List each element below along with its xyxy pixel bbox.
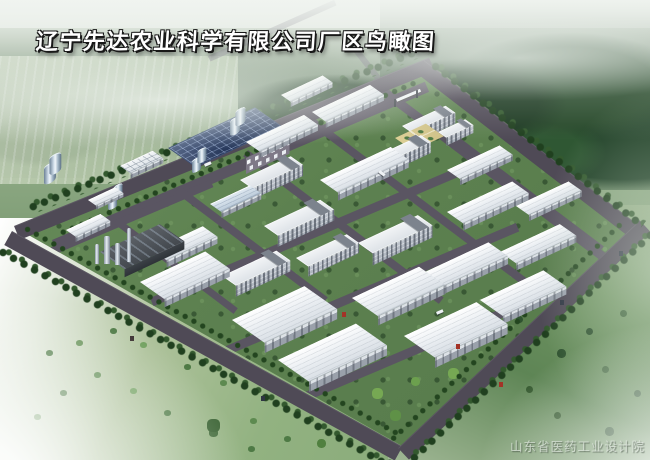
chimney — [127, 228, 131, 262]
boiler-stack — [104, 236, 110, 264]
gate-post — [394, 99, 396, 107]
pedestrian-dots — [0, 0, 2, 3]
page-title: 辽宁先达农业科学有限公司厂区鸟瞰图 — [35, 24, 437, 56]
designer-watermark: 山东省医药工业设计院 — [510, 436, 645, 455]
boiler-stack — [115, 243, 120, 265]
aerial-rendering-scene: 辽宁先达农业科学有限公司厂区鸟瞰图 山东省医药工业设计院 — [0, 0, 650, 460]
boiler-stack — [95, 244, 99, 264]
gate-post — [416, 90, 418, 98]
